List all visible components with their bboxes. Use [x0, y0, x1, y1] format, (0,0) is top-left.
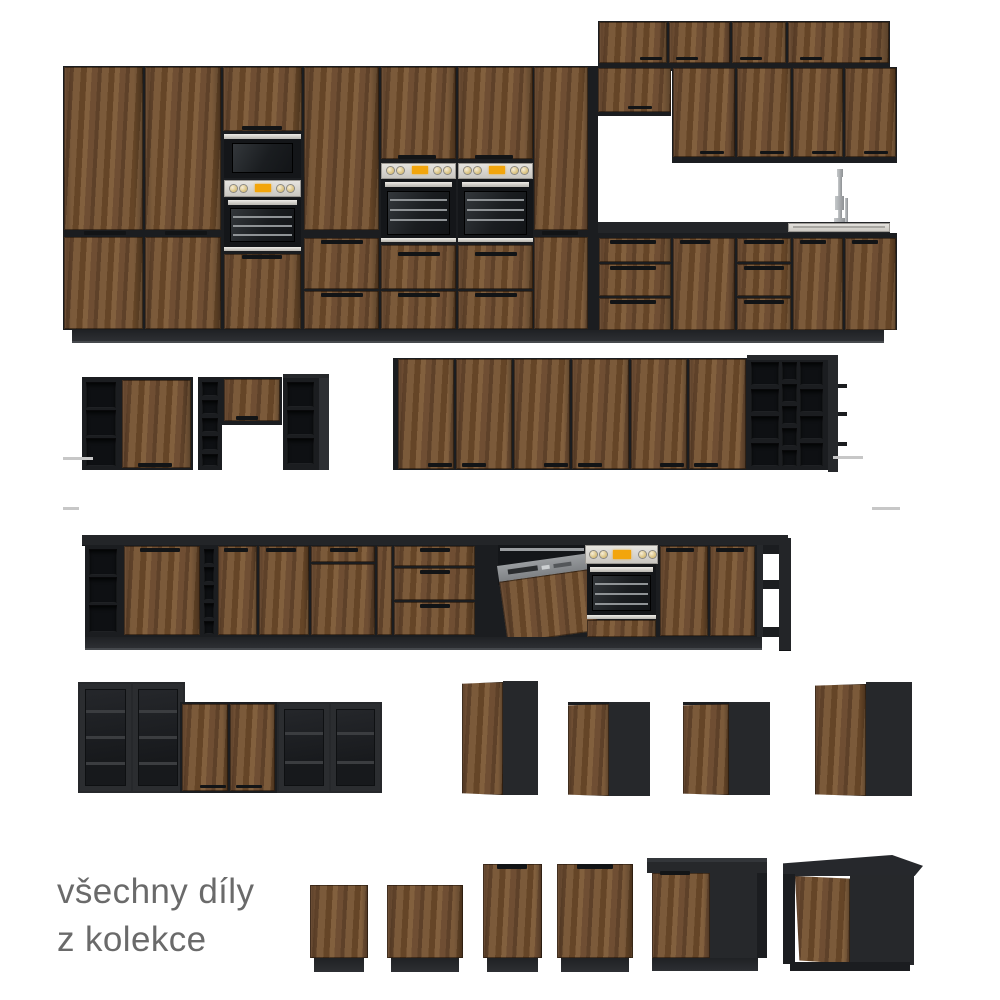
wall-rail — [63, 507, 79, 510]
wood-wall-cabinet — [180, 702, 277, 793]
oven-knob — [600, 551, 607, 558]
tower-bottom-door — [224, 254, 301, 329]
corner-base-door-angled — [795, 876, 850, 964]
handle — [694, 463, 718, 467]
handle — [700, 151, 724, 154]
oven-knob — [521, 167, 528, 174]
oven-knob — [397, 167, 404, 174]
shelf-cell — [86, 410, 116, 436]
oven-rack — [467, 199, 524, 201]
half-height-wall-cabinet — [222, 377, 282, 425]
shelf-cell — [204, 621, 214, 634]
handle — [666, 548, 694, 552]
drawer-front — [304, 238, 379, 289]
plinth — [72, 330, 884, 341]
shelf-cell — [800, 443, 823, 466]
plinth — [391, 958, 459, 972]
wall-door — [631, 359, 687, 469]
handle — [744, 240, 784, 244]
plinth-edge — [72, 341, 884, 343]
corner-wall-door — [815, 684, 866, 796]
microwave-window — [232, 143, 293, 173]
handle — [242, 255, 282, 259]
handle — [676, 57, 698, 60]
glass-shelf — [86, 736, 125, 739]
handle — [744, 266, 784, 270]
handle — [84, 231, 126, 235]
oven-rack — [233, 234, 292, 236]
handle — [680, 240, 710, 244]
oven-rack — [390, 219, 447, 221]
grid-side-panel — [828, 356, 838, 472]
handle — [864, 151, 888, 154]
base-door — [673, 238, 735, 330]
handle — [628, 106, 652, 109]
base-cabinet-door — [310, 885, 368, 958]
shelf-cell — [800, 416, 823, 439]
plinth — [487, 958, 538, 972]
oven-handle — [462, 182, 529, 187]
oven-knob — [511, 167, 518, 174]
base-door — [710, 546, 755, 636]
wall-cabinet-row-lower — [672, 67, 897, 163]
corner-base-top-face — [647, 858, 767, 862]
base-cabinet-run — [598, 233, 897, 330]
upper-door — [381, 67, 456, 159]
plinth — [314, 958, 364, 972]
shelf-cell — [782, 450, 797, 466]
narrow-open-shelf — [198, 377, 222, 470]
corner-base-door — [652, 873, 710, 958]
base-door — [660, 546, 708, 636]
oven-rack — [390, 209, 447, 211]
handle — [740, 57, 762, 60]
shelf-side-panel — [319, 377, 329, 470]
handle — [610, 266, 656, 270]
handle — [200, 785, 226, 788]
shelf-cell — [89, 549, 117, 575]
handle — [321, 293, 363, 297]
handle — [610, 300, 656, 304]
glass-shelf — [285, 761, 323, 764]
shelf-cell — [751, 389, 779, 412]
wall-door — [230, 704, 275, 791]
oven-knob — [434, 167, 441, 174]
tall-door — [534, 67, 588, 230]
wall-rail — [63, 457, 93, 460]
shelf-cell — [204, 585, 214, 600]
oven-rack — [467, 219, 524, 221]
shelf-cell — [800, 362, 823, 385]
oven-rack — [233, 216, 292, 218]
shelf-cell — [86, 438, 116, 466]
handle — [224, 548, 248, 552]
shelf-cell — [751, 362, 779, 385]
glass-shelf — [86, 710, 125, 713]
oven-display — [412, 166, 428, 174]
shelf-cell — [204, 549, 214, 564]
dishwasher-door — [497, 553, 599, 643]
oven-handle — [385, 182, 452, 187]
handle — [420, 604, 450, 608]
oven-display — [613, 550, 631, 559]
sink-rim — [793, 226, 885, 228]
plinth — [652, 958, 758, 971]
wall-door — [845, 68, 896, 157]
oven-rack — [595, 583, 648, 585]
shelf-cell — [86, 382, 116, 408]
dishwasher-panel — [499, 569, 599, 643]
handle — [462, 463, 486, 467]
handle — [236, 785, 262, 788]
handle — [610, 240, 656, 244]
shelf-cell — [89, 605, 117, 632]
wall-door — [122, 380, 191, 468]
oven-knob — [639, 551, 646, 558]
tall-door — [304, 67, 379, 230]
handle — [266, 548, 296, 552]
corner-wall-side — [609, 702, 650, 796]
handle — [577, 864, 613, 869]
wall-door — [673, 68, 735, 157]
wall-cabinet-row-upper — [598, 21, 890, 71]
oven-knob — [474, 167, 481, 174]
oven-knob — [444, 167, 451, 174]
oven-rack — [467, 209, 524, 211]
base-cabinet-door — [557, 864, 633, 958]
shelf-cell — [782, 428, 797, 446]
glass-wall-cabinet-tall — [78, 682, 185, 793]
handle — [640, 57, 662, 60]
handle — [542, 231, 578, 235]
wall-door — [572, 359, 629, 469]
handle — [475, 293, 517, 297]
handle — [852, 240, 878, 244]
wall-rail — [833, 456, 863, 459]
handle — [497, 864, 527, 869]
shelf-cell — [782, 362, 797, 380]
glass-shelf — [139, 762, 177, 765]
built-in-oven — [587, 564, 656, 615]
handle — [398, 293, 440, 297]
oven-handle — [590, 567, 653, 572]
shelf-cell — [782, 384, 797, 402]
handle — [428, 463, 452, 467]
plinth-edge — [85, 648, 762, 650]
corner-wall-door — [462, 682, 503, 795]
shelf-cell — [202, 436, 218, 450]
upper-door — [458, 67, 533, 159]
handle — [236, 416, 258, 420]
sink-base-door — [845, 238, 896, 330]
corner-open-shelf — [283, 374, 329, 470]
end-shelf-side — [757, 545, 763, 637]
filler-panel — [377, 546, 392, 635]
built-in-oven — [381, 179, 456, 242]
oven-window — [387, 191, 450, 235]
glass-shelf — [337, 761, 374, 764]
handle — [475, 155, 513, 159]
dishwasher-rim — [500, 548, 584, 551]
corner-base-front — [710, 873, 757, 958]
oven-bottom-trim — [587, 615, 656, 619]
corner-base-front — [850, 875, 914, 965]
glass-door — [279, 704, 329, 791]
oven-drawer — [587, 620, 656, 637]
sink-base-door — [793, 238, 843, 330]
oven-display — [489, 166, 505, 174]
handle — [860, 57, 882, 60]
shelf-cell — [202, 382, 218, 396]
shelf-cell — [782, 406, 797, 424]
oven-knob — [287, 185, 294, 192]
shelf-stub — [838, 412, 847, 416]
shelf-cell — [800, 389, 823, 412]
glass-shelf — [139, 736, 177, 739]
base-cabinet-door — [483, 864, 542, 958]
base-cabinet-door — [387, 885, 463, 958]
wall-door — [793, 68, 843, 157]
handle — [660, 463, 684, 467]
base-door — [311, 564, 375, 635]
handle — [165, 231, 207, 235]
base-door — [64, 237, 143, 329]
wall-door — [737, 68, 791, 157]
end-shelf-post — [779, 538, 791, 651]
handle — [660, 871, 690, 875]
handle — [138, 463, 172, 467]
shelf-stub — [838, 442, 847, 446]
corner-wall-door — [683, 704, 729, 795]
handle — [330, 548, 358, 552]
open-shelf-grid — [747, 355, 848, 472]
wall-door — [182, 704, 228, 791]
wall-door — [224, 379, 280, 421]
base-door — [124, 546, 200, 635]
handle — [475, 252, 517, 256]
wall-cabinet-long-run — [397, 358, 747, 470]
handle — [398, 252, 440, 256]
shelf-cell — [287, 438, 314, 464]
corner-wall-door — [568, 704, 609, 796]
shelf-cell — [202, 454, 218, 466]
shelf-cell — [287, 382, 314, 407]
tall-door — [64, 67, 143, 230]
caption-line-2: z kolekce — [57, 922, 207, 957]
fascia-display — [541, 565, 549, 570]
glass-shelf — [139, 710, 177, 713]
wall-door — [689, 359, 746, 469]
wall-cabinet — [120, 377, 193, 470]
glass-shelf — [86, 762, 125, 765]
oven-knob — [464, 167, 471, 174]
shelf-stub — [838, 384, 847, 388]
base-door — [145, 237, 221, 329]
oven-display — [255, 184, 271, 192]
oven-bottom-trim — [381, 238, 456, 242]
handle — [578, 463, 602, 467]
glass-wall-cabinet — [277, 702, 382, 793]
handle — [398, 155, 436, 159]
oven-knob — [277, 185, 284, 192]
handle — [812, 151, 836, 154]
corner-base-side — [757, 873, 767, 958]
wall-door — [514, 359, 570, 469]
handle — [140, 548, 180, 552]
base-door — [218, 546, 257, 635]
caption-line-1: všechny díly — [57, 874, 254, 909]
oven-bottom-trim — [224, 247, 301, 251]
wall-door — [456, 359, 512, 469]
handle — [544, 463, 568, 467]
shelf-cell — [202, 400, 218, 414]
fascia-slot — [553, 562, 571, 568]
oven-handle — [228, 200, 297, 205]
kitchen-collection-sheet: všechny díly z kolekce — [0, 0, 1000, 1000]
corner-wall-side — [503, 681, 538, 795]
tower-top-door — [223, 67, 302, 131]
glass-door — [331, 704, 380, 791]
faucet-top — [837, 169, 843, 177]
shelf-cell — [89, 577, 117, 603]
wall-door-short-bottom — [598, 112, 671, 116]
corner-wall-side — [866, 682, 912, 796]
oven-knob — [590, 551, 597, 558]
shelf-cell — [204, 603, 214, 618]
built-in-oven — [458, 179, 533, 242]
corner-base-side-sliver — [783, 874, 795, 964]
oven-knob — [240, 185, 247, 192]
plinth — [790, 962, 910, 971]
handle — [420, 570, 450, 574]
oven-knob — [387, 167, 394, 174]
oven-rack — [233, 225, 292, 227]
plinth — [561, 958, 629, 972]
handle — [321, 240, 363, 244]
corner-base-top-angled — [783, 855, 923, 876]
oven-rack — [595, 603, 648, 605]
tall-door — [145, 67, 221, 230]
shelf-cell — [204, 567, 214, 582]
corner-wall-side — [729, 702, 770, 795]
handle — [716, 548, 744, 552]
shelf-top — [283, 374, 329, 378]
fascia-slot — [508, 565, 538, 574]
oven-window — [464, 191, 527, 235]
handle — [242, 126, 282, 130]
shelf-cell — [751, 416, 779, 439]
wall-door — [398, 359, 454, 469]
handle — [760, 151, 784, 154]
base-door — [534, 237, 588, 329]
handle — [800, 57, 822, 60]
oven-knob — [649, 551, 656, 558]
grid-top — [747, 355, 838, 360]
wall-rail — [872, 507, 900, 510]
shelf-cell — [287, 410, 314, 435]
oven-rack — [595, 593, 648, 595]
oven-knob — [230, 185, 237, 192]
base-door — [259, 546, 309, 635]
shelf-cell — [751, 443, 779, 466]
island-plinth — [85, 637, 762, 648]
built-in-oven — [224, 198, 301, 247]
glass-shelf — [285, 732, 323, 735]
glass-shelf — [337, 732, 374, 735]
faucet-spout — [845, 198, 848, 224]
faucet-body — [835, 196, 844, 210]
handle — [800, 240, 826, 244]
tall-cabinet-run — [63, 66, 598, 330]
shelf-cell — [202, 418, 218, 432]
handle — [420, 548, 450, 552]
handle — [744, 300, 784, 304]
oven-bottom-trim — [458, 238, 533, 242]
oven-rack — [390, 199, 447, 201]
